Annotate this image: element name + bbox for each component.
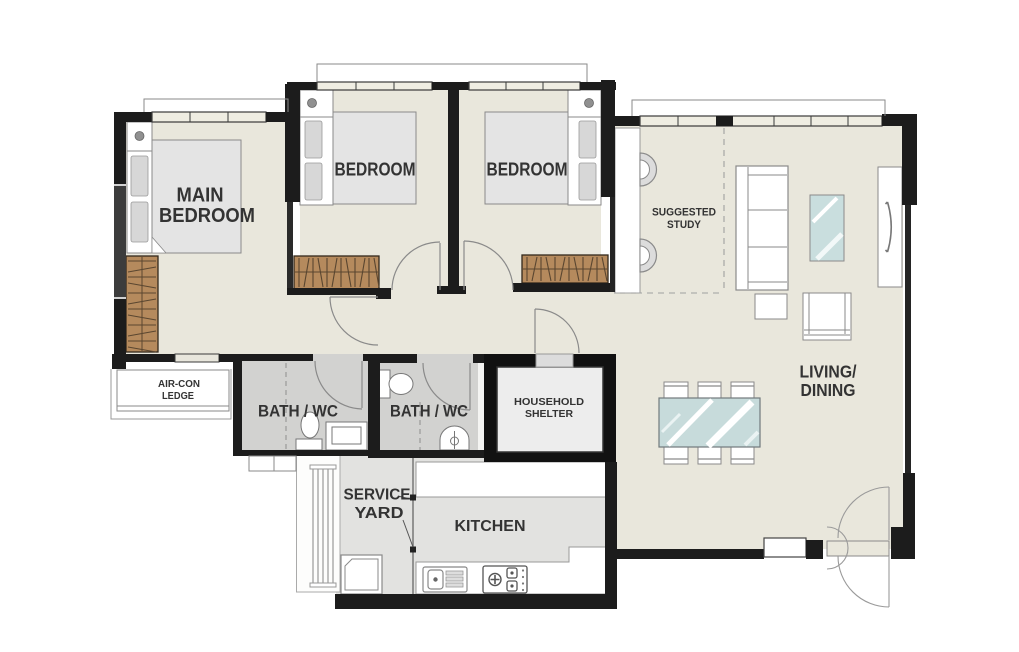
svg-text:BATH / WC: BATH / WC	[258, 403, 338, 421]
svg-text:KITCHEN: KITCHEN	[455, 518, 526, 535]
svg-text:MAIN: MAIN	[177, 185, 224, 207]
svg-text:SUGGESTED: SUGGESTED	[652, 207, 716, 219]
svg-text:AIR-CON: AIR-CON	[158, 379, 200, 390]
svg-text:BEDROOM: BEDROOM	[487, 160, 568, 180]
svg-text:DINING: DINING	[801, 380, 856, 400]
svg-text:LIVING/: LIVING/	[800, 362, 857, 382]
svg-text:HOUSEHOLD: HOUSEHOLD	[514, 396, 584, 408]
svg-text:YARD: YARD	[355, 505, 404, 522]
svg-text:LEDGE: LEDGE	[162, 391, 194, 402]
svg-text:BEDROOM: BEDROOM	[335, 160, 416, 180]
svg-text:SHELTER: SHELTER	[525, 408, 573, 420]
svg-text:BATH / WC: BATH / WC	[390, 403, 468, 421]
svg-text:STUDY: STUDY	[667, 219, 702, 231]
svg-text:BEDROOM: BEDROOM	[159, 205, 255, 227]
svg-text:SERVICE: SERVICE	[344, 487, 411, 504]
